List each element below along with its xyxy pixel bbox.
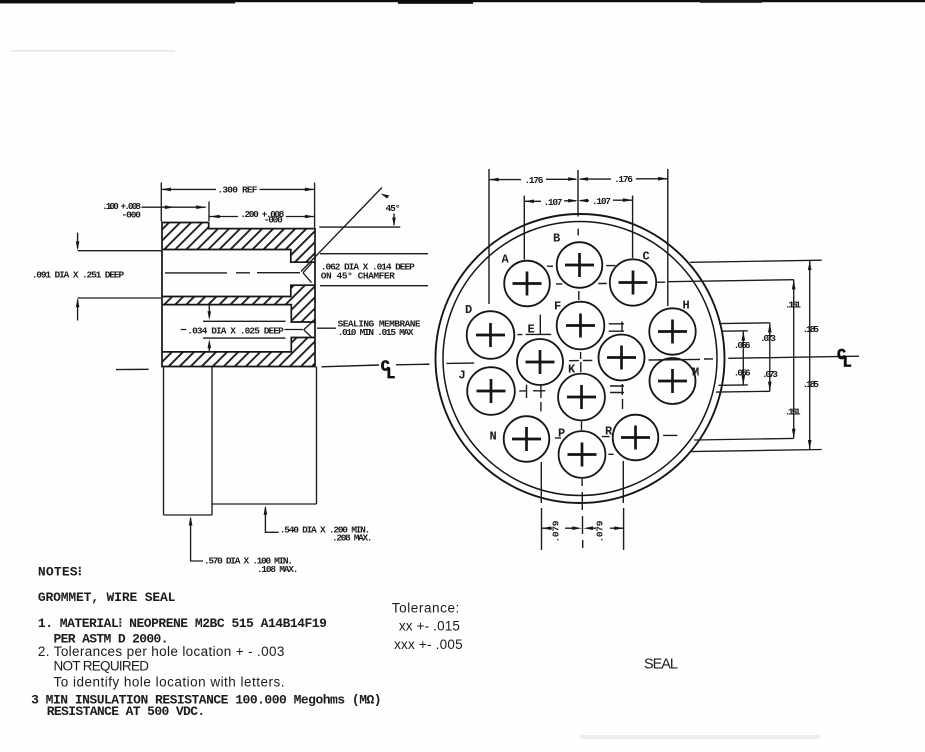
svg-text:.056: .056 [734, 340, 751, 351]
svg-text:A: A [502, 253, 510, 267]
svg-text:.108 MAX.: .108 MAX. [257, 564, 299, 575]
svg-text:N: N [490, 430, 497, 444]
svg-text:NOTES⁝: NOTES⁝ [38, 564, 82, 579]
svg-text:.010 MIN .015 MAX: .010 MIN .015 MAX [338, 327, 414, 338]
svg-text:xxx +- .005: xxx +- .005 [394, 637, 463, 652]
svg-text:ON 45° CHAMFER: ON 45° CHAMFER [321, 271, 395, 282]
svg-text:RESISTANCE AT 500 VDC.: RESISTANCE AT 500 VDC. [47, 704, 206, 719]
svg-text:2. Tolerances per hole locatio: 2. Tolerances per hole location + - .003 [38, 644, 285, 659]
svg-text:.056: .056 [734, 368, 751, 379]
svg-text:.091 DIA X .251 DEEP: .091 DIA X .251 DEEP [32, 270, 125, 281]
svg-text:L: L [386, 366, 395, 383]
svg-text:.079: .079 [595, 520, 606, 542]
svg-text:-000: -000 [122, 210, 142, 221]
svg-text:.107: .107 [544, 197, 563, 208]
svg-text:45°: 45° [386, 203, 401, 214]
svg-text:.185: .185 [803, 379, 820, 390]
svg-text:.151: .151 [785, 299, 801, 310]
svg-text:M: M [692, 366, 699, 380]
svg-text:.107: .107 [592, 196, 611, 207]
svg-text:.073: .073 [762, 369, 778, 380]
svg-text:J: J [459, 369, 466, 383]
svg-text:K: K [568, 363, 576, 377]
svg-text:F: F [554, 300, 561, 314]
svg-text:1. MATERIAL⁝ NEOPRENE M2BC 515: 1. MATERIAL⁝ NEOPRENE M2BC 515 A14B14F19 [38, 616, 327, 631]
svg-text:.185: .185 [803, 324, 820, 335]
svg-text:C: C [643, 250, 650, 264]
svg-text:xx +- .015: xx +- .015 [399, 618, 460, 633]
svg-text:B: B [553, 232, 560, 246]
svg-text:L: L [843, 354, 852, 371]
svg-text:D: D [465, 303, 472, 317]
svg-text:.151: .151 [785, 407, 801, 418]
svg-text:NOT REQUIRED: NOT REQUIRED [54, 659, 150, 674]
svg-text:-000: -000 [264, 215, 283, 226]
svg-text:H: H [683, 299, 690, 313]
svg-text:.073: .073 [760, 333, 776, 344]
svg-text:Tolerance:: Tolerance: [392, 600, 460, 615]
svg-text:.300 REF: .300 REF [218, 185, 258, 196]
svg-text:.034 DIA X .025 DEEP: .034 DIA X .025 DEEP [187, 325, 284, 336]
svg-text:.079: .079 [551, 520, 562, 542]
svg-text:SEAL: SEAL [644, 657, 678, 673]
svg-text:.208 MAX.: .208 MAX. [332, 532, 373, 543]
svg-text:.176: .176 [614, 174, 633, 185]
svg-text:.176: .176 [525, 175, 544, 186]
svg-text:To identify hole location with: To identify hole location with letters. [54, 674, 285, 689]
svg-text:GROMMET, WIRE SEAL: GROMMET, WIRE SEAL [38, 590, 176, 605]
